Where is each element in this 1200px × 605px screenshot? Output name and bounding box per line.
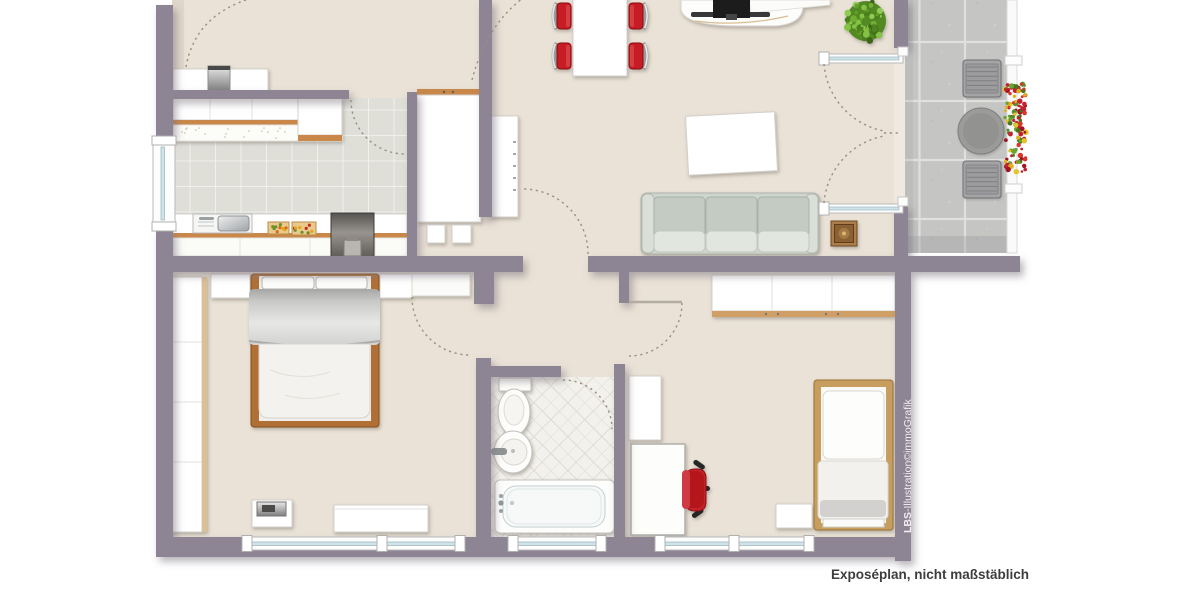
- svg-text:LBS-Illustration©immoGrafik: LBS-Illustration©immoGrafik: [902, 398, 914, 533]
- svg-text:Exposéplan, nicht maßstäblich: Exposéplan, nicht maßstäblich: [831, 567, 1029, 582]
